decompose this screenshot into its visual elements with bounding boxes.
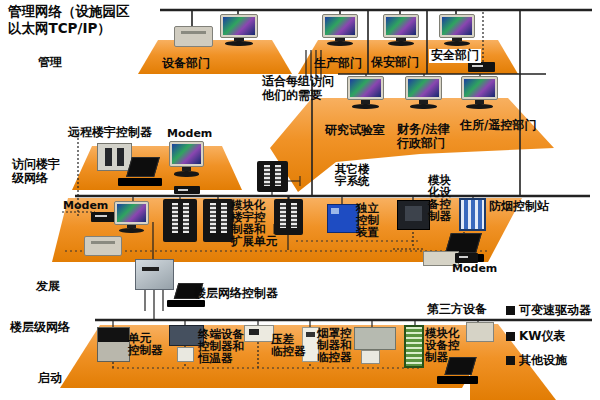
computer-icon: [347, 76, 384, 113]
monitor-frame: [439, 14, 475, 38]
label-security-dept: 保安部门: [371, 56, 419, 70]
monitor-frame: [383, 14, 419, 38]
label-safety-dept: 安全部门: [429, 49, 481, 63]
label-access-note: 适合每组访问 他们的需要: [262, 75, 334, 102]
monitor-base: [410, 104, 437, 109]
computer-icon: [322, 14, 358, 50]
label-residence-remote: 住所/遥控部门: [460, 119, 536, 133]
level-label-floor: 楼层级网络: [10, 321, 70, 335]
monitor-base: [119, 228, 145, 233]
label-production-dept: 生产部门: [314, 57, 362, 71]
label-pressure-monitor: 压差 临控器: [271, 333, 306, 357]
label-modem-top: Modem: [167, 128, 212, 140]
label-finance-admin: 财务/法律 行政部门: [397, 123, 449, 150]
smoke-control-station-icon: [459, 198, 486, 231]
monitor-base: [388, 41, 415, 46]
monitor-frame: [405, 76, 442, 100]
monitor-frame: [114, 201, 149, 225]
monitor-base: [352, 104, 379, 109]
controller-cabinet-icon: [163, 199, 197, 242]
label-modular-equipment-controller-mid: 模块 化设 备控 制器: [428, 174, 451, 222]
monitor-screen: [350, 79, 381, 97]
printer-icon: [174, 26, 213, 47]
cabinet-slot: [172, 203, 178, 233]
legend-label: 其他设施: [519, 352, 567, 369]
label-research-lab: 研究试验室: [325, 124, 385, 138]
hub-device-icon: [468, 62, 495, 72]
cabinet-slot: [275, 165, 281, 186]
monitor-base: [174, 171, 200, 177]
label-modem-left: Modem: [63, 200, 108, 212]
cabinet-slot: [280, 203, 286, 228]
monitor-base: [327, 41, 354, 46]
monitor-base: [225, 41, 253, 46]
legend-square-icon: [506, 306, 515, 315]
cabinet-slot: [264, 165, 270, 186]
level-label-startup: 启动: [38, 372, 62, 386]
label-third-party: 第三方设备: [427, 303, 487, 317]
label-modem-right: Modem: [452, 263, 497, 275]
label-unit-controller: 单元 控制器: [128, 332, 163, 356]
monitor-screen: [172, 144, 201, 164]
laptop-base: [118, 178, 162, 186]
third-party-device-icon: [466, 322, 494, 342]
monitor-base: [444, 41, 471, 46]
monitor-screen: [117, 204, 146, 222]
label-hood-controller: 烟罩控 制器和 临控器: [317, 327, 352, 363]
standalone-control-device-icon: [327, 204, 359, 233]
label-terminal-controller: 终端设备 控制器和 恒温器: [198, 328, 244, 364]
laptop-icon: [118, 157, 162, 187]
laptop-screen: [126, 157, 160, 177]
legend-item-variable-speed-drive: 可变速驱动器: [506, 302, 591, 319]
label-floor-network-controller: 楼层网络控制器: [194, 287, 278, 301]
legend-square-icon: [506, 332, 515, 341]
cabinet-slot: [210, 203, 216, 233]
modem-device-icon: [174, 186, 200, 194]
computer-icon: [405, 76, 442, 113]
controller-cabinet-icon: [203, 199, 233, 242]
monitor-frame: [220, 14, 258, 38]
cabinet-slot: [221, 203, 227, 233]
monitor-screen: [408, 79, 439, 97]
pressure-monitor-icon: [244, 325, 274, 342]
display-unit-icon: [361, 350, 380, 364]
unit-controller-icon: [97, 327, 130, 362]
laptop-screen: [445, 233, 482, 253]
network-diagram: 管理网络（设施园区 以太网TCP/IP） 管理 设备部门 生产部门 保安部门 安…: [0, 0, 600, 400]
monitor-frame: [347, 76, 384, 100]
level-label-management: 管理: [38, 56, 62, 70]
computer-icon: [220, 14, 258, 50]
legend-label: KW仪表: [519, 328, 566, 345]
monitor-frame: [169, 141, 204, 167]
modem-computer-icon: [169, 141, 204, 181]
monitor-frame: [461, 76, 498, 100]
thermostat-icon: [177, 347, 194, 362]
level-label-access: 访问楼宇 级网络: [12, 158, 60, 185]
monitor-base: [466, 104, 493, 109]
modular-equipment-controller-icon: [397, 200, 430, 230]
label-equipment-dept: 设备部门: [162, 57, 210, 71]
equipment-box-icon: [354, 327, 396, 350]
printer-icon: [84, 236, 122, 256]
monitor-screen: [223, 17, 255, 35]
laptop-base: [437, 376, 478, 384]
legend-square-icon: [506, 356, 515, 365]
label-standalone-control: 独立 控制 装置: [356, 202, 379, 238]
legend-label: 可变速驱动器: [519, 302, 591, 319]
monitor-screen: [464, 79, 495, 97]
monitor-screen: [325, 17, 355, 35]
label-smoke-control-station: 防烟控制站: [489, 200, 549, 214]
legend-item-other-facilities: 其他设施: [506, 352, 567, 369]
laptop-base: [167, 300, 205, 307]
label-modular-equipment-controller-bottom: 模块化 设备控 制器: [425, 327, 460, 363]
label-remote-building-controller: 远程楼宇控制器: [68, 126, 152, 140]
computer-icon: [383, 14, 419, 50]
diagram-title: 管理网络（设施园区 以太网TCP/IP）: [8, 3, 168, 37]
computer-icon: [439, 14, 475, 50]
controller-cabinet-icon: [274, 199, 303, 235]
label-other-building-systems: 其它楼 宇系统: [335, 163, 370, 187]
cabinet-slot: [291, 203, 297, 228]
controller-cabinet-icon: [257, 161, 288, 192]
cabinet-slot: [183, 203, 189, 233]
modular-equipment-cabinet-icon: [404, 325, 424, 368]
computer-icon: [114, 201, 149, 237]
monitor-screen: [442, 17, 472, 35]
monitor-screen: [386, 17, 416, 35]
computer-icon: [461, 76, 498, 113]
monitor-frame: [322, 14, 358, 38]
level-label-development: 发展: [36, 280, 60, 294]
legend-item-kw-meter: KW仪表: [506, 328, 566, 345]
label-modular-building-controller: 模块化 楼宇控 制器和 扩展单元: [231, 199, 277, 247]
controller-slot: [105, 148, 112, 166]
